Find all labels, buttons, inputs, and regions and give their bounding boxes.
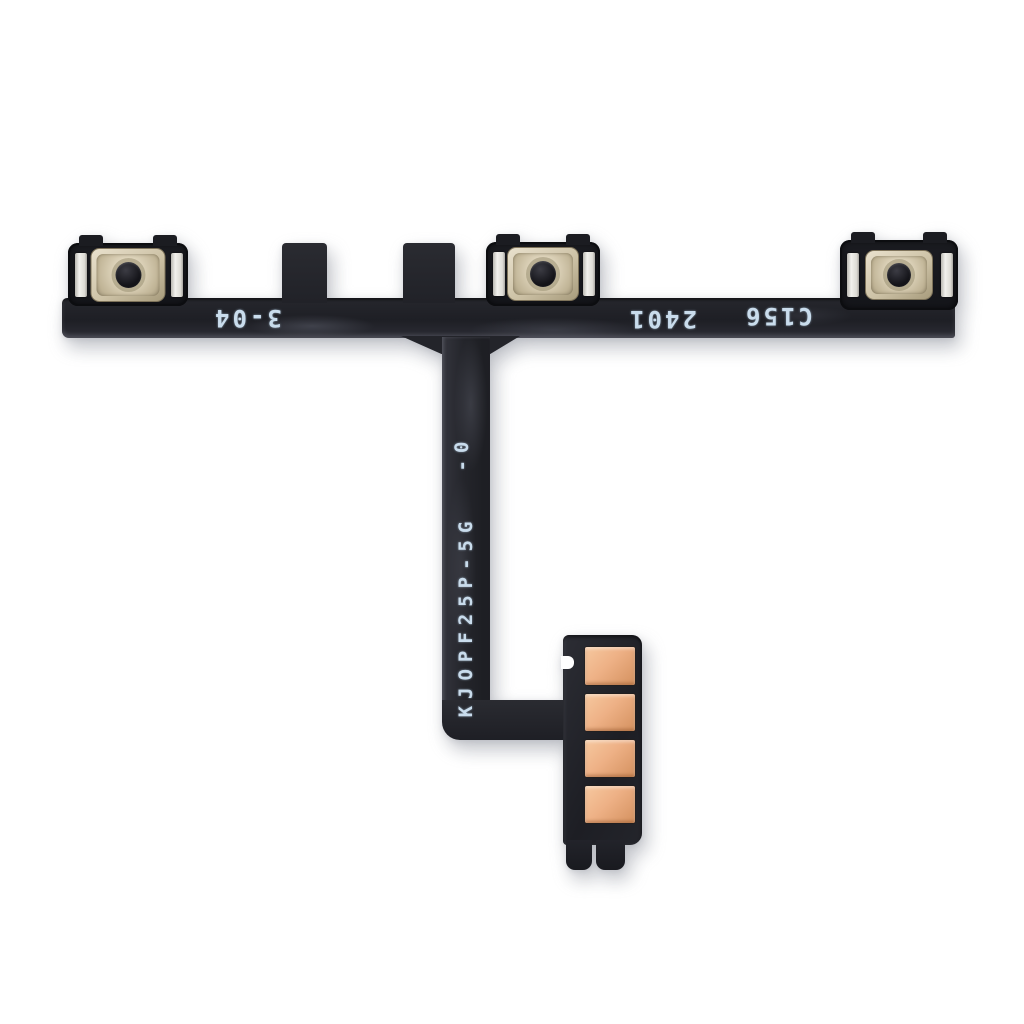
connector-foot xyxy=(566,840,592,870)
switch-mount-tab xyxy=(496,234,520,245)
switch-mount-tab xyxy=(153,235,177,246)
flex-tab-1 xyxy=(282,243,327,303)
switch-center-pin xyxy=(887,263,911,287)
marking-model-code: KJOPF25P-5G xyxy=(454,508,478,724)
gold-contact-pad xyxy=(585,647,635,685)
switch-side-contact xyxy=(941,253,953,297)
switch-mount-tab xyxy=(851,232,875,243)
tactile-switch-left xyxy=(68,243,188,306)
flex-cable-photo: 3-04 2401 C156 KJOPF25P-5G -0 xyxy=(0,0,1024,1024)
tactile-switch-middle xyxy=(486,242,600,306)
switch-mount-tab xyxy=(923,232,947,243)
switch-metal-dome xyxy=(91,248,166,302)
gold-contact-pad xyxy=(585,786,635,823)
flex-tab-2 xyxy=(403,243,455,303)
switch-side-contact xyxy=(847,253,859,297)
board-connector xyxy=(563,635,642,845)
marking-date-code: 2401 xyxy=(620,305,704,333)
connector-notch xyxy=(561,656,574,669)
tactile-switch-right xyxy=(840,240,958,310)
switch-center-pin xyxy=(530,261,556,287)
switch-side-contact xyxy=(171,253,183,297)
switch-center-pin xyxy=(115,262,141,288)
switch-metal-dome xyxy=(865,250,933,300)
switch-side-contact xyxy=(493,252,505,296)
switch-mount-tab xyxy=(566,234,590,245)
gold-contact-pad xyxy=(585,694,635,731)
switch-metal-dome xyxy=(507,247,579,301)
flex-cable-part: 3-04 2401 C156 KJOPF25P-5G -0 xyxy=(0,0,1024,1024)
switch-side-contact xyxy=(75,253,87,297)
marking-board-code: C156 xyxy=(740,302,816,330)
switch-mount-tab xyxy=(79,235,103,246)
switch-side-contact xyxy=(583,252,595,296)
gold-contact-pad xyxy=(585,740,635,777)
marking-revision-code: -0 xyxy=(450,425,474,481)
marking-left-code: 3-04 xyxy=(205,304,289,332)
connector-foot xyxy=(596,840,625,870)
